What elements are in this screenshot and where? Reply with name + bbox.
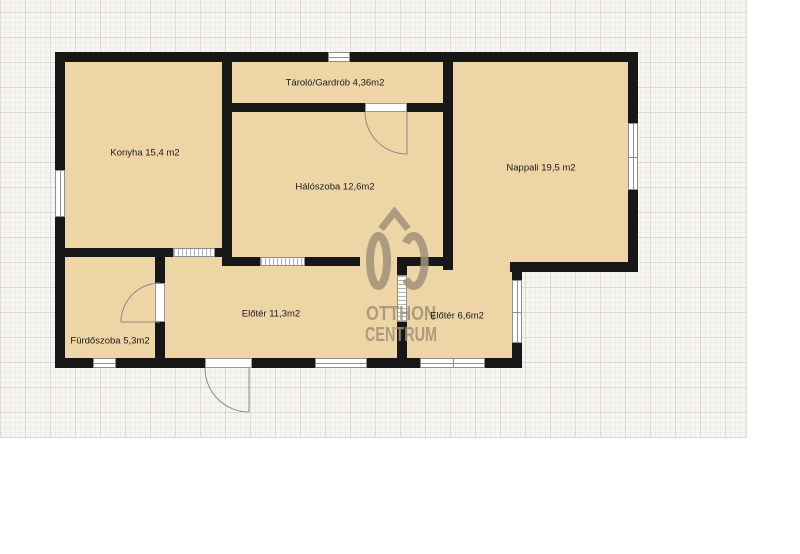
room-label-furdoszoba: Fürdőszoba 5,3m2 — [70, 336, 149, 347]
floorplan-canvas: OTTHON CENTRUM Konyha 15,4 m2Tároló/Gard… — [0, 0, 800, 554]
room-label-haloszoba: Hálószoba 12,6m2 — [295, 182, 374, 193]
room-label-eloter-kis: Előtér 6,6m2 — [430, 311, 484, 322]
room-label-konyha: Konyha 15,4 m2 — [110, 148, 179, 159]
room-label-nappali: Nappali 19,5 m2 — [506, 163, 575, 174]
room-label-eloter-nagy: Előtér 11,3m2 — [242, 309, 300, 320]
room-label-tarolo: Tároló/Gardrób 4,36m2 — [286, 78, 385, 89]
room-labels: Konyha 15,4 m2Tároló/Gardrób 4,36m2Hálós… — [0, 0, 800, 554]
